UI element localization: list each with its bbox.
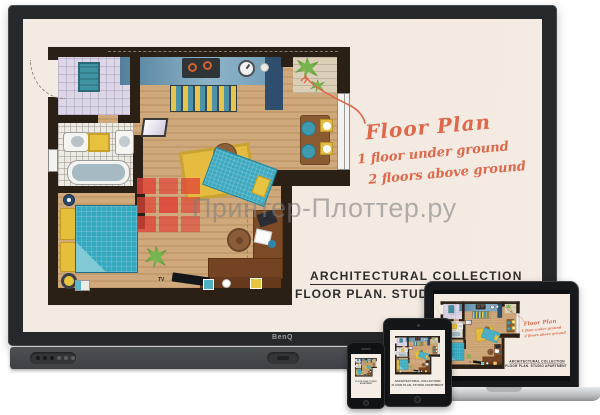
shelf-item (368, 375, 369, 376)
sink (405, 348, 408, 352)
speaker (63, 194, 75, 206)
wall (337, 170, 350, 186)
dining-chair (301, 144, 316, 159)
plate (496, 306, 498, 308)
tablet-screen: ARCHITECTURAL COLLECTION FLOOR PLAN. STU… (390, 330, 445, 394)
bedside-box (357, 375, 358, 376)
bathtub (398, 353, 407, 357)
earpiece-icon (361, 348, 371, 350)
bed (399, 360, 408, 370)
control-dot-icon (57, 356, 61, 360)
speaker (397, 358, 399, 360)
shower-mat (357, 359, 359, 361)
control-dot-icon (71, 356, 75, 360)
tv-label: TV (158, 277, 164, 283)
desk-speaker (498, 352, 500, 354)
wall (48, 97, 58, 149)
entry-door-swing (30, 60, 65, 99)
desk-speaker (428, 365, 429, 366)
shelf-item (421, 371, 422, 372)
sink (115, 130, 134, 155)
control-dot-icon (50, 356, 54, 360)
dining-chair (512, 326, 515, 329)
poster-caption-line2: FLOOR PLAN. STUDIO APARTMENT (505, 364, 567, 368)
tablet: ARCHITECTURAL COLLECTION FLOOR PLAN. STU… (383, 318, 452, 407)
bed-cushion (60, 242, 76, 272)
bath-rug (401, 349, 404, 352)
laptop-screen: TV Floor Plan 1 floor under ground 2 flo… (433, 290, 570, 381)
annotation-title: Floor Plan (364, 110, 492, 145)
wall (408, 349, 409, 357)
wall (395, 346, 402, 347)
bathtub (67, 160, 130, 185)
mini-caption: FLOOR PLAN. STUDIO APARTMENT (351, 381, 381, 385)
dining-chair (436, 350, 438, 352)
tv-label: TV (469, 362, 471, 364)
wall (281, 47, 293, 67)
wall (438, 336, 440, 343)
striped-rug (364, 361, 369, 363)
power-button-icon (36, 356, 40, 360)
shelf-item (250, 278, 262, 289)
tv-label: TV (411, 370, 412, 371)
cooktop (476, 304, 486, 309)
entry-door-swing (354, 359, 357, 362)
bathroom-window (48, 149, 58, 172)
dining-chair (507, 327, 511, 331)
wall (376, 367, 377, 368)
shelf-item (203, 279, 214, 290)
shelf-item (481, 362, 484, 365)
sink (458, 323, 463, 330)
striped-rug (473, 311, 491, 318)
office-chair (227, 228, 251, 252)
dining-chair (436, 347, 438, 349)
shower-mat (399, 338, 402, 342)
shelf-item (370, 375, 371, 376)
balcony-window (438, 343, 440, 354)
wall-mirror (141, 118, 169, 137)
bed-cushion (60, 208, 76, 240)
wall-mirror (465, 320, 472, 325)
home-button (363, 400, 369, 406)
wall (118, 115, 140, 123)
wall (48, 186, 143, 193)
annotation-line (506, 308, 525, 323)
home-button (414, 396, 421, 403)
sensor-slot-icon (277, 356, 289, 360)
kitchen-clock (423, 338, 426, 341)
control-dot-icon (64, 356, 68, 360)
floor-plan: TV (395, 336, 440, 374)
ir-sensor (267, 352, 299, 364)
wall-mirror (409, 347, 413, 350)
phone-screen: FLOOR PLAN. STUDIO APARTMENT (351, 354, 381, 398)
wall-mirror (362, 363, 364, 364)
speaker (356, 369, 357, 370)
bedside-box (75, 280, 90, 291)
laptop-notch (486, 387, 522, 392)
mini-caption: FLOOR PLAN. STUDIO APARTMENT (390, 383, 445, 387)
shelf-item (418, 371, 420, 373)
shelf-item (425, 370, 427, 372)
wall (459, 319, 465, 321)
cooktop (182, 58, 220, 78)
wall (407, 336, 408, 346)
entry-door-swing (392, 338, 397, 344)
wall (463, 324, 466, 337)
bed (357, 369, 362, 374)
camera-icon (417, 324, 420, 327)
bed (75, 205, 138, 273)
plate (427, 338, 428, 339)
shelf-item (222, 279, 231, 288)
striped-rug (170, 85, 237, 112)
plate (370, 359, 371, 360)
smartphone: FLOOR PLAN. STUDIO APARTMENT (347, 342, 385, 409)
wall (48, 115, 98, 123)
wall (462, 301, 465, 319)
shelf-item (493, 362, 496, 365)
desk-speaker (371, 372, 372, 373)
kitchen-clock (490, 305, 494, 309)
wall (48, 47, 58, 60)
poster: TV Floor Plan 1 floor under ground 2 flo… (434, 294, 570, 376)
watermark-logo (137, 178, 200, 232)
bedside-box (399, 371, 401, 373)
bath-rug (88, 133, 110, 152)
cooktop (415, 338, 421, 341)
wall (48, 47, 350, 57)
product-photo: TV Floor Plan 1 floor under ground 2 flo… (0, 0, 600, 415)
floor-plan: TV (355, 358, 377, 377)
dining-chair (375, 365, 376, 366)
shelf-item (486, 362, 488, 364)
wall (130, 47, 140, 117)
striped-rug (413, 342, 423, 346)
poster-caption-line1: ARCHITECTURAL COLLECTION (509, 360, 565, 364)
section-line (108, 51, 338, 52)
desk (208, 258, 283, 279)
kitchen-clock (238, 60, 255, 77)
wall (438, 354, 440, 356)
office-chair (487, 349, 493, 355)
control-buttons (30, 352, 76, 364)
dining-chair (320, 142, 333, 155)
plate (260, 63, 269, 72)
desk-speaker (268, 240, 276, 248)
watermark-text: Принтер-Плоттер.ру (192, 193, 457, 224)
shower-mat (448, 305, 454, 313)
shower-mat (78, 62, 100, 92)
annotation-line (299, 71, 371, 127)
toilet (63, 132, 89, 152)
entry-door-swing (436, 305, 445, 315)
bathtub (356, 366, 361, 368)
control-dot-icon (43, 356, 47, 360)
wall (516, 334, 519, 338)
